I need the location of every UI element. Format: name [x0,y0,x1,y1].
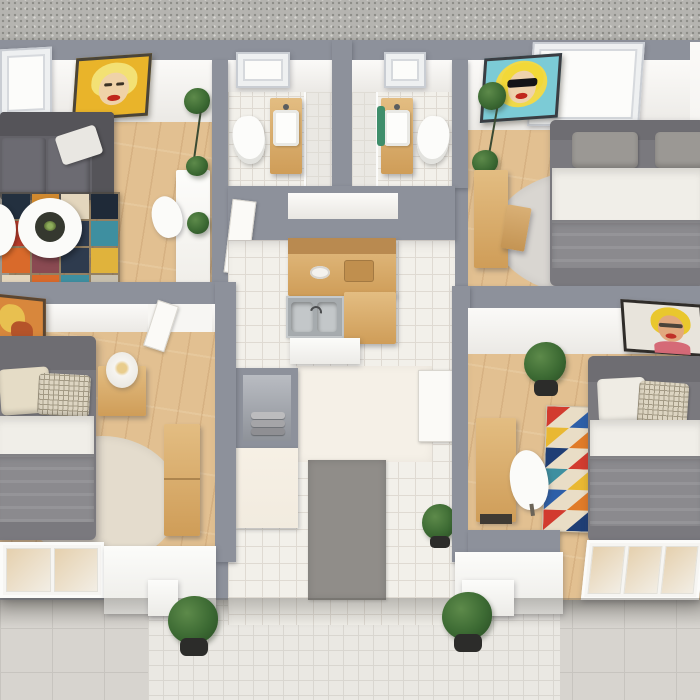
hallway-plant-pot [430,536,450,548]
towel-stack [251,428,285,435]
bathroom-divider-wall [332,40,352,188]
hallway-plant [422,504,456,540]
living-room-plant-leaf [186,156,208,176]
hallway-top-wall [228,186,455,240]
rug-tile [91,221,119,246]
bed-pillow [572,132,638,168]
wall-hallway-left [215,282,236,562]
bathroom1-faucet [283,104,289,110]
sofa [0,112,114,200]
facade-shadow [0,598,700,628]
bench-shelf-line [164,478,200,480]
sink-basin [291,302,313,332]
kitchen-cutting-board [344,260,374,282]
terrace-plant-pot [180,638,208,656]
living-room-window [0,47,52,120]
bathroom2-green-accent [377,106,385,146]
glass-pane [6,548,51,592]
bathroom1-shower [304,92,332,186]
bedroom-bl-sliding-door [0,542,104,598]
glass-pane [587,546,625,594]
painting-eyes [104,83,112,87]
kitchen-counter-top [288,238,396,296]
bed-blanket [552,220,700,268]
coffee-table [18,198,82,258]
bedroom-br-bed [588,356,700,542]
bathroom2-faucet [394,104,400,110]
kitchen-upper-cabinet [288,238,396,254]
bed-blanket [590,456,700,526]
living-room-plant [184,88,210,114]
bedroom-bl-bed [0,336,96,540]
vestibule-floor [296,366,432,462]
painting-pink-clothing [654,340,691,355]
table-lamp [106,352,138,388]
painting-popart-portrait [620,299,700,357]
rug-triangle [546,406,570,427]
bedroom-bl-bench [164,424,200,536]
bathroom2-vanity [381,98,413,174]
entry-mat [308,460,386,600]
bathroom1-vanity [270,98,302,174]
kitchen-counter-side [344,292,396,344]
floor-plan-render [0,0,700,700]
terrace-plant [168,596,218,644]
bedroom-br-plant-pot [534,380,558,396]
triangle-rug [542,405,594,533]
towel-closet [236,368,298,448]
rug-triangle [566,510,590,531]
terrace-plant-pot [454,634,482,652]
towel-stack [251,420,285,427]
rug-triangle [543,510,567,531]
glass-pane [54,548,99,592]
bedroom-tr-plant [478,82,506,110]
chair-leg [529,504,535,516]
cream-cabinet [236,448,298,528]
bedroom-br-plant [524,342,566,384]
towel-stack [251,412,285,419]
bathroom2-shower [352,92,378,186]
rug-triangle [545,448,569,469]
bedroom-br-sliding-doors [581,540,700,600]
bathroom1-window [236,52,290,88]
hallway-niche [288,193,398,219]
bathroom2-window [384,52,426,88]
bed-duvet [552,168,700,226]
glass-pane [660,546,698,594]
desk-leg-shadow [480,514,512,524]
kitchen-sink-unit [286,296,344,338]
rug-tile [91,248,119,273]
terrace-plant [442,592,492,640]
bed-pillow [655,132,700,168]
sofa-armrest [92,112,114,200]
rug-triangle [567,490,591,511]
bathroom2-sink [384,110,410,146]
bed-pillow-checkered [37,373,91,418]
kitchen-bowl [310,266,330,279]
tray-plant-sprig [44,221,56,231]
rug-tile [91,194,119,219]
bed-blanket [0,454,94,522]
bedroom-tr-desk [474,170,508,268]
glass-pane [624,546,662,594]
bed-headboard [0,336,96,370]
concrete-ledge [0,0,700,42]
kitchen-lower-cabinet [290,338,360,364]
bedroom-tr-bed [550,120,700,286]
hallway-door [418,370,456,442]
rug-triangle [546,427,570,448]
bathroom1-sink [273,110,299,146]
wall-bath-bedroom [452,60,468,188]
dining-table-plant [187,212,209,234]
painting-marilyn-yellow [72,53,152,121]
sofa-cushion [2,138,46,196]
